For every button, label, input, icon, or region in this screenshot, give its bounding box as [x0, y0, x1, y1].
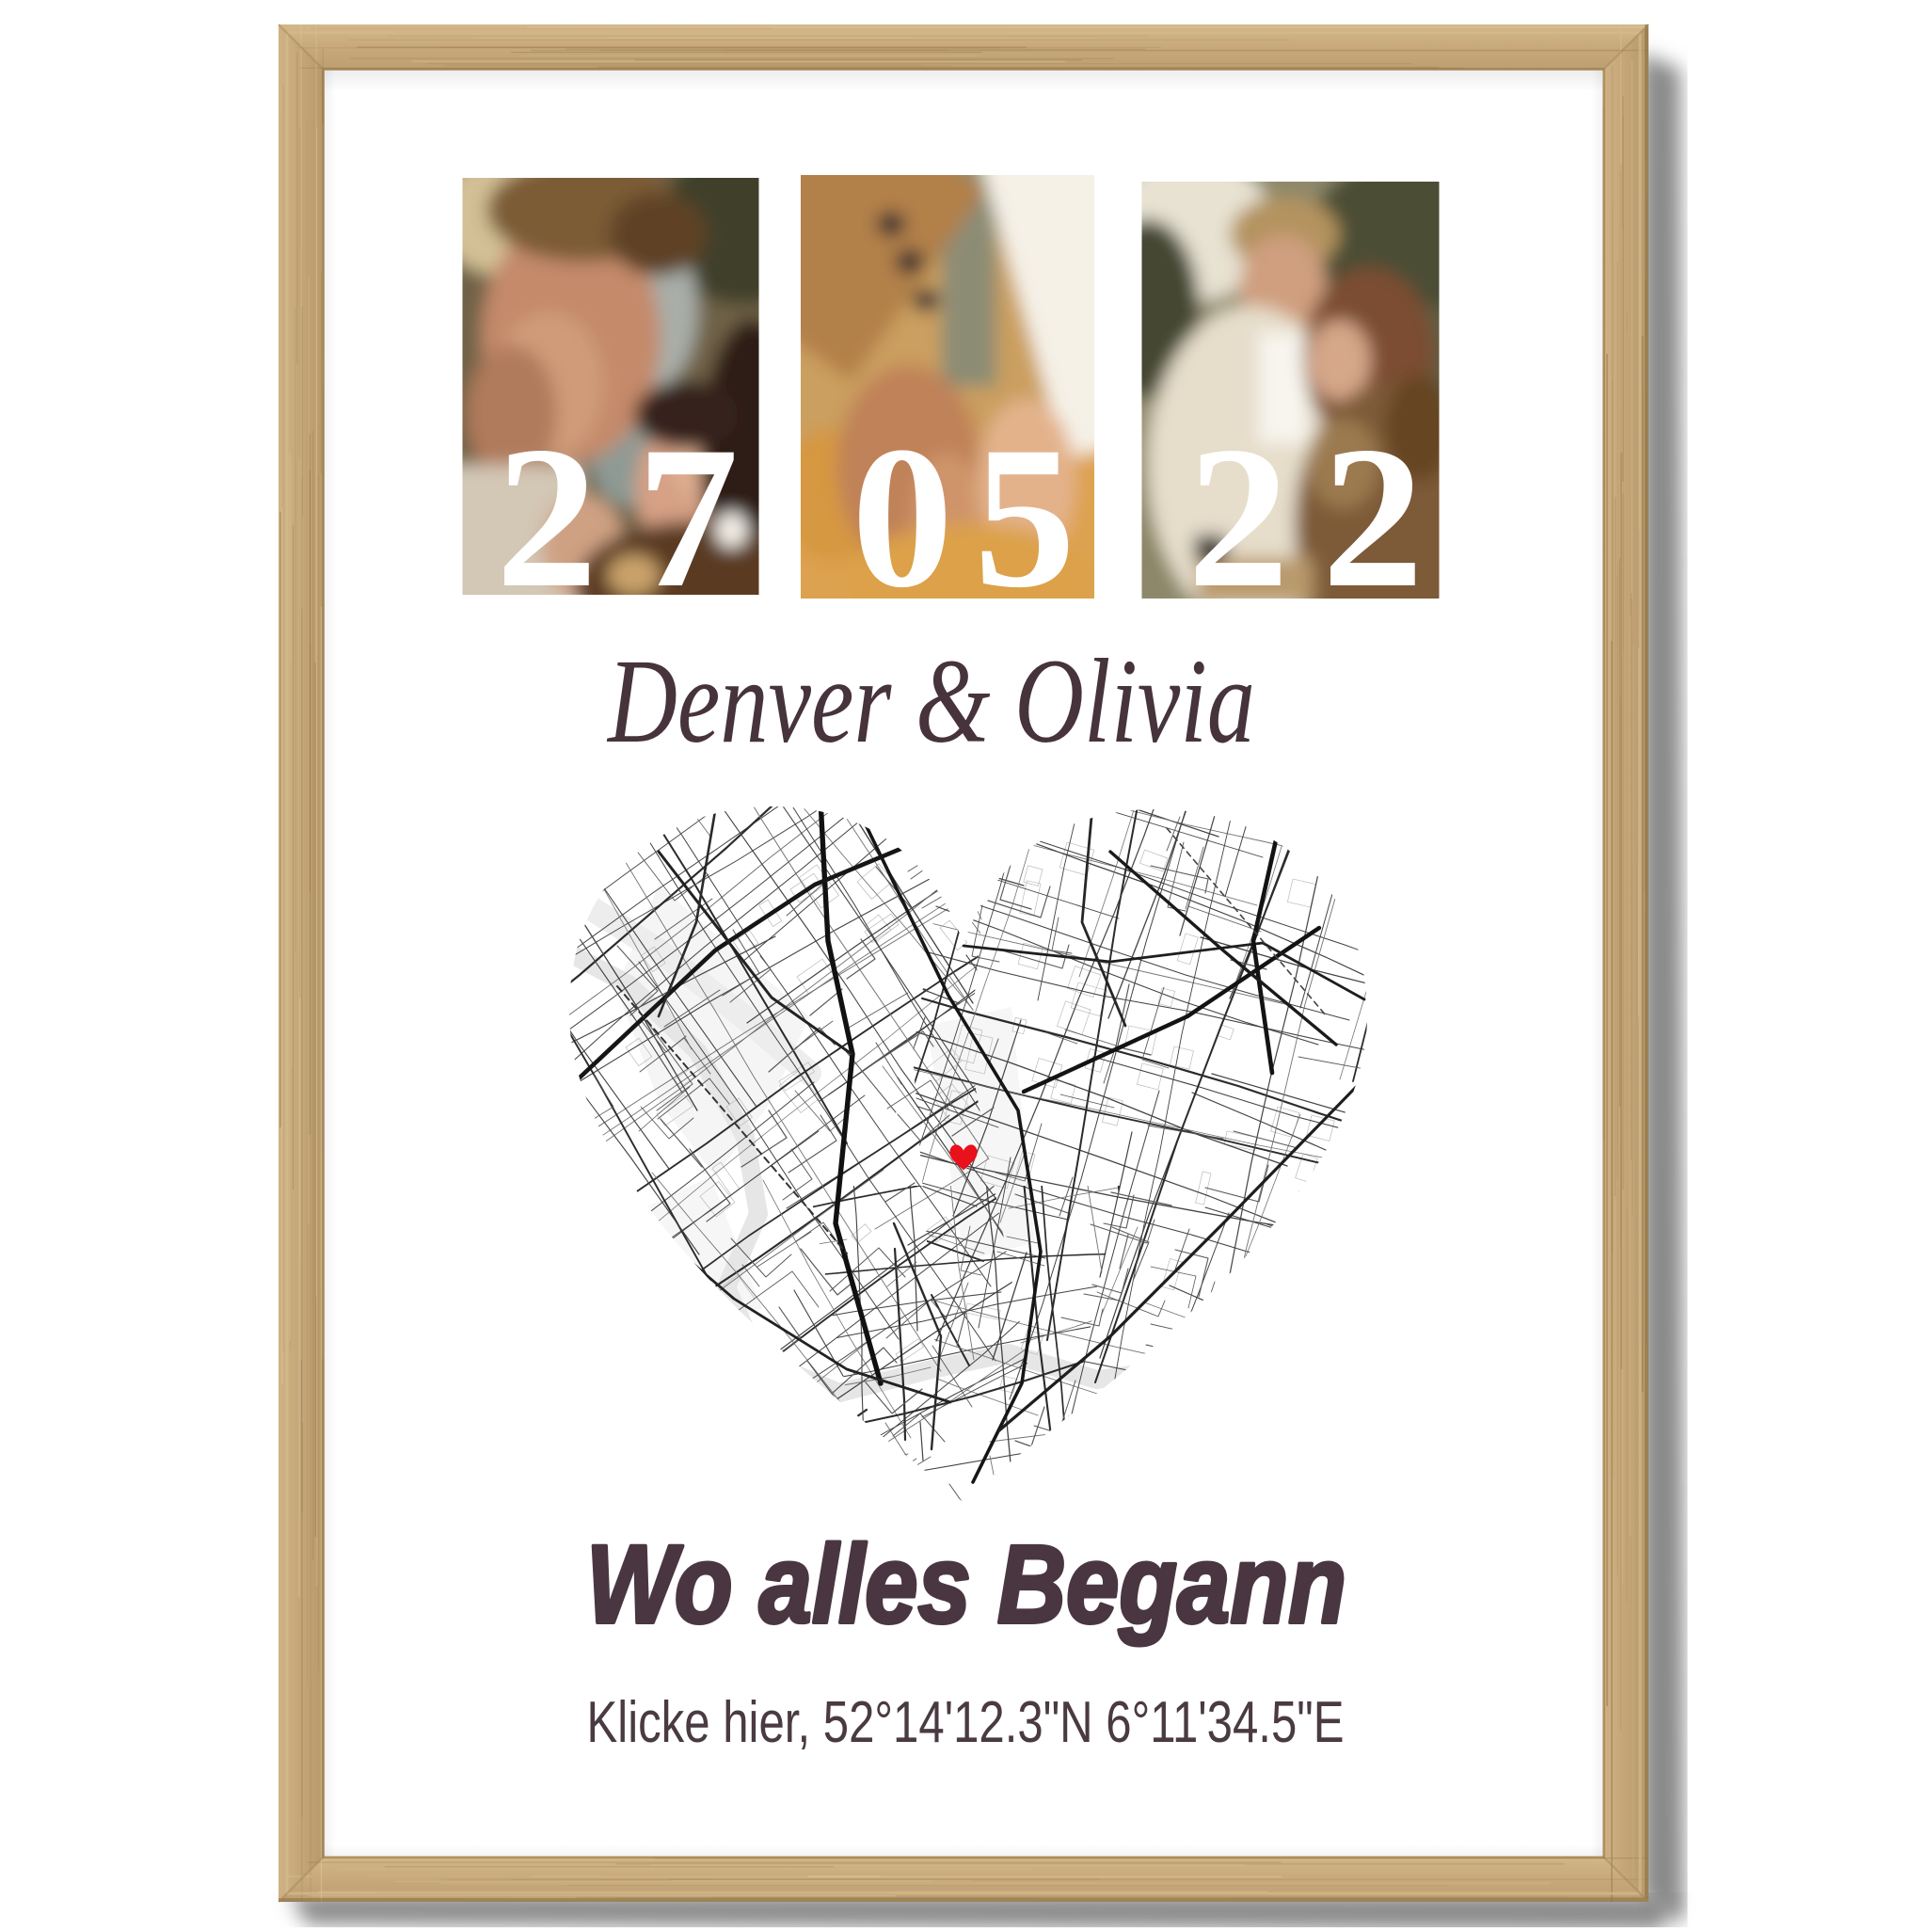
svg-text:0: 0	[852, 405, 953, 630]
svg-text:Denver & Olivia: Denver & Olivia	[606, 634, 1255, 768]
svg-text:2: 2	[496, 405, 597, 630]
svg-text:2: 2	[1322, 405, 1424, 630]
svg-text:Klicke hier, 52°14'12.3"N 6°11: Klicke hier, 52°14'12.3"N 6°11'34.5"E	[587, 1690, 1345, 1755]
svg-text:2: 2	[1187, 405, 1289, 630]
svg-text:Wo alles Begann: Wo alles Begann	[586, 1523, 1346, 1647]
svg-text:7: 7	[637, 405, 739, 630]
svg-text:5: 5	[974, 405, 1075, 630]
